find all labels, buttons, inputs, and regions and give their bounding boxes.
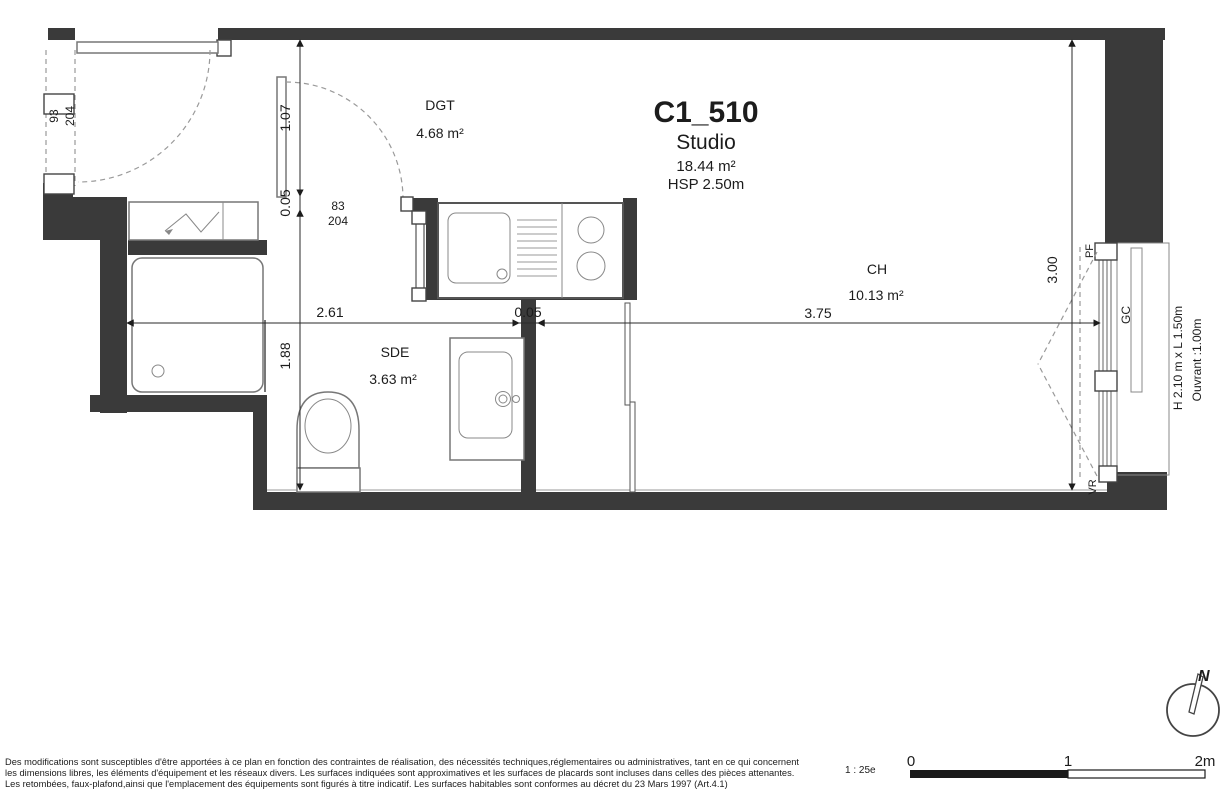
note-line-2: les dimensions libres, les éléments d'éq… [5,768,794,778]
note-line-1: Des modifications sont susceptibles d'êt… [5,757,799,767]
window-opening: Ouvrant :1.00m [1190,319,1204,402]
scale-bar: 1 : 25e 0 1 2m [845,753,1215,778]
unit-id: C1_510 [653,96,758,129]
title-block: C1_510 Studio 18.44 m² HSP 2.50m [653,96,758,193]
dim-0-05-v: 0.05 [277,189,293,216]
room-dgt-area: 4.68 m² [416,125,464,141]
window-size: H 2.10 m x L 1.50m [1171,306,1185,410]
unit-area: 18.44 m² [676,158,735,175]
room-ch-name: CH [867,261,887,277]
scale-tick-1: 1 [1064,753,1072,770]
label-gc: GC [1119,306,1133,324]
north-compass: N [1167,668,1219,736]
note-line-3: Les retombées, faux-plafond,ainsi que l'… [5,779,728,789]
entry-door-swing-arc [78,50,210,182]
dim-1-88: 1.88 [277,342,293,369]
unit-type: Studio [676,131,736,154]
window-labels: PF GC H 2.10 m x L 1.50m Ouvrant :1.00m … [1084,244,1204,495]
dim-3-75: 3.75 [804,305,831,321]
label-vr: VR [1087,479,1099,494]
dgt-door-swing-arc [286,82,403,199]
dim-3-00: 3.00 [1044,256,1060,283]
toilet [297,392,360,492]
label-pf: PF [1084,244,1096,258]
room-sde-name: SDE [381,344,410,360]
washbasin [450,338,524,460]
casement-swing [1038,364,1097,476]
disclaimer: Des modifications sont susceptibles d'êt… [5,757,799,789]
dim-0-05-h: 0.05 [514,304,541,320]
north-label: N [1198,668,1210,685]
room-ch-area: 10.13 m² [848,287,904,303]
room-dgt-name: DGT [425,97,455,113]
sliding-door [625,303,635,492]
kitchenette [412,203,623,301]
dim-2-61: 2.61 [316,304,343,320]
scale-tick-0: 0 [907,753,915,770]
scale-tick-2: 2m [1195,753,1216,770]
glazing-lines [1099,247,1111,478]
floor-plan-sheet: C1_510 Studio 18.44 m² HSP 2.50m DGT 4.6… [0,0,1231,800]
entry-door-width: 93 [47,109,61,123]
dgt-door [277,77,413,211]
inner-door-width: 83 [331,199,345,213]
unit-hsp: HSP 2.50m [668,176,744,193]
dimension-labels: 1.07 0.05 1.88 2.61 0.05 3.75 3.00 [277,104,1060,369]
closet-unit [129,202,258,240]
room-sde-area: 3.63 m² [369,371,417,387]
floor-plan-drawing: C1_510 Studio 18.44 m² HSP 2.50m DGT 4.6… [0,0,1231,800]
inner-door-height: 204 [328,214,348,228]
shower-tray [132,258,265,392]
entry-door-height: 204 [63,106,77,126]
dim-1-07: 1.07 [277,104,293,131]
balcony-slab [1117,243,1169,475]
scale-ratio: 1 : 25e [845,765,876,776]
sde-door-panel [416,223,424,289]
